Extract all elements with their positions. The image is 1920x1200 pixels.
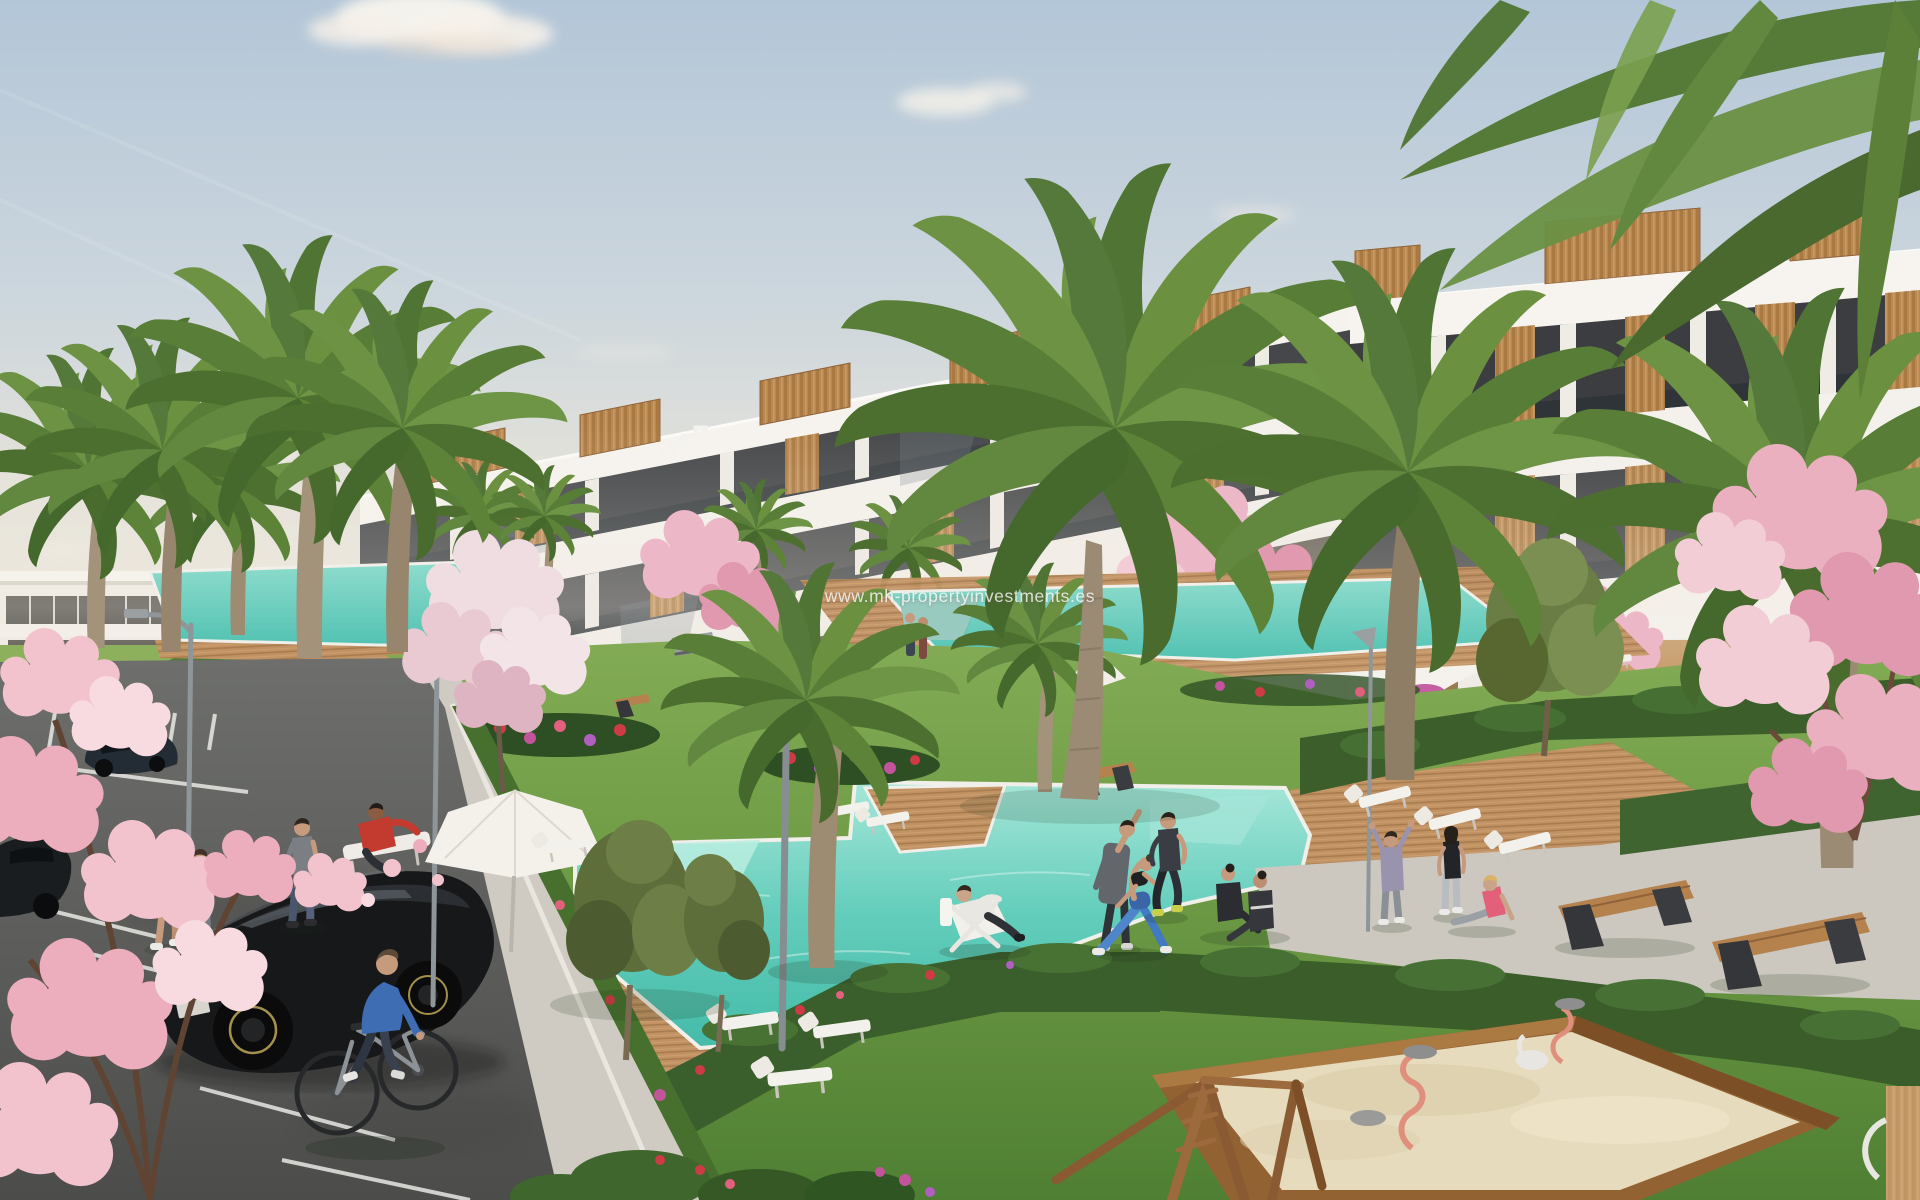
- render-image: www.mh-propertyinvestments.es: [0, 0, 1920, 1200]
- sand-toy-pan: [1350, 1110, 1386, 1126]
- watermark: www.mh-propertyinvestments.es: [825, 586, 1095, 607]
